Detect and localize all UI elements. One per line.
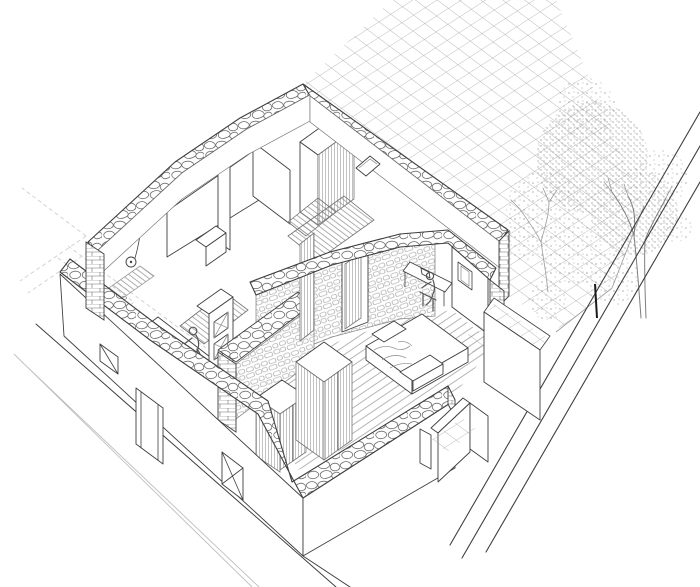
drawing-canvas bbox=[0, 0, 700, 587]
wardrobe-b bbox=[296, 342, 352, 460]
tree-foliage bbox=[660, 210, 692, 242]
bedroom-door-leaf bbox=[345, 253, 361, 329]
central-door-leaf bbox=[300, 233, 314, 341]
bush-foliage bbox=[528, 280, 568, 320]
tree-foliage bbox=[632, 150, 688, 206]
brick-end-left-corner bbox=[86, 242, 104, 320]
partition-wall bbox=[253, 142, 290, 224]
axonometric-drawing bbox=[0, 0, 700, 587]
